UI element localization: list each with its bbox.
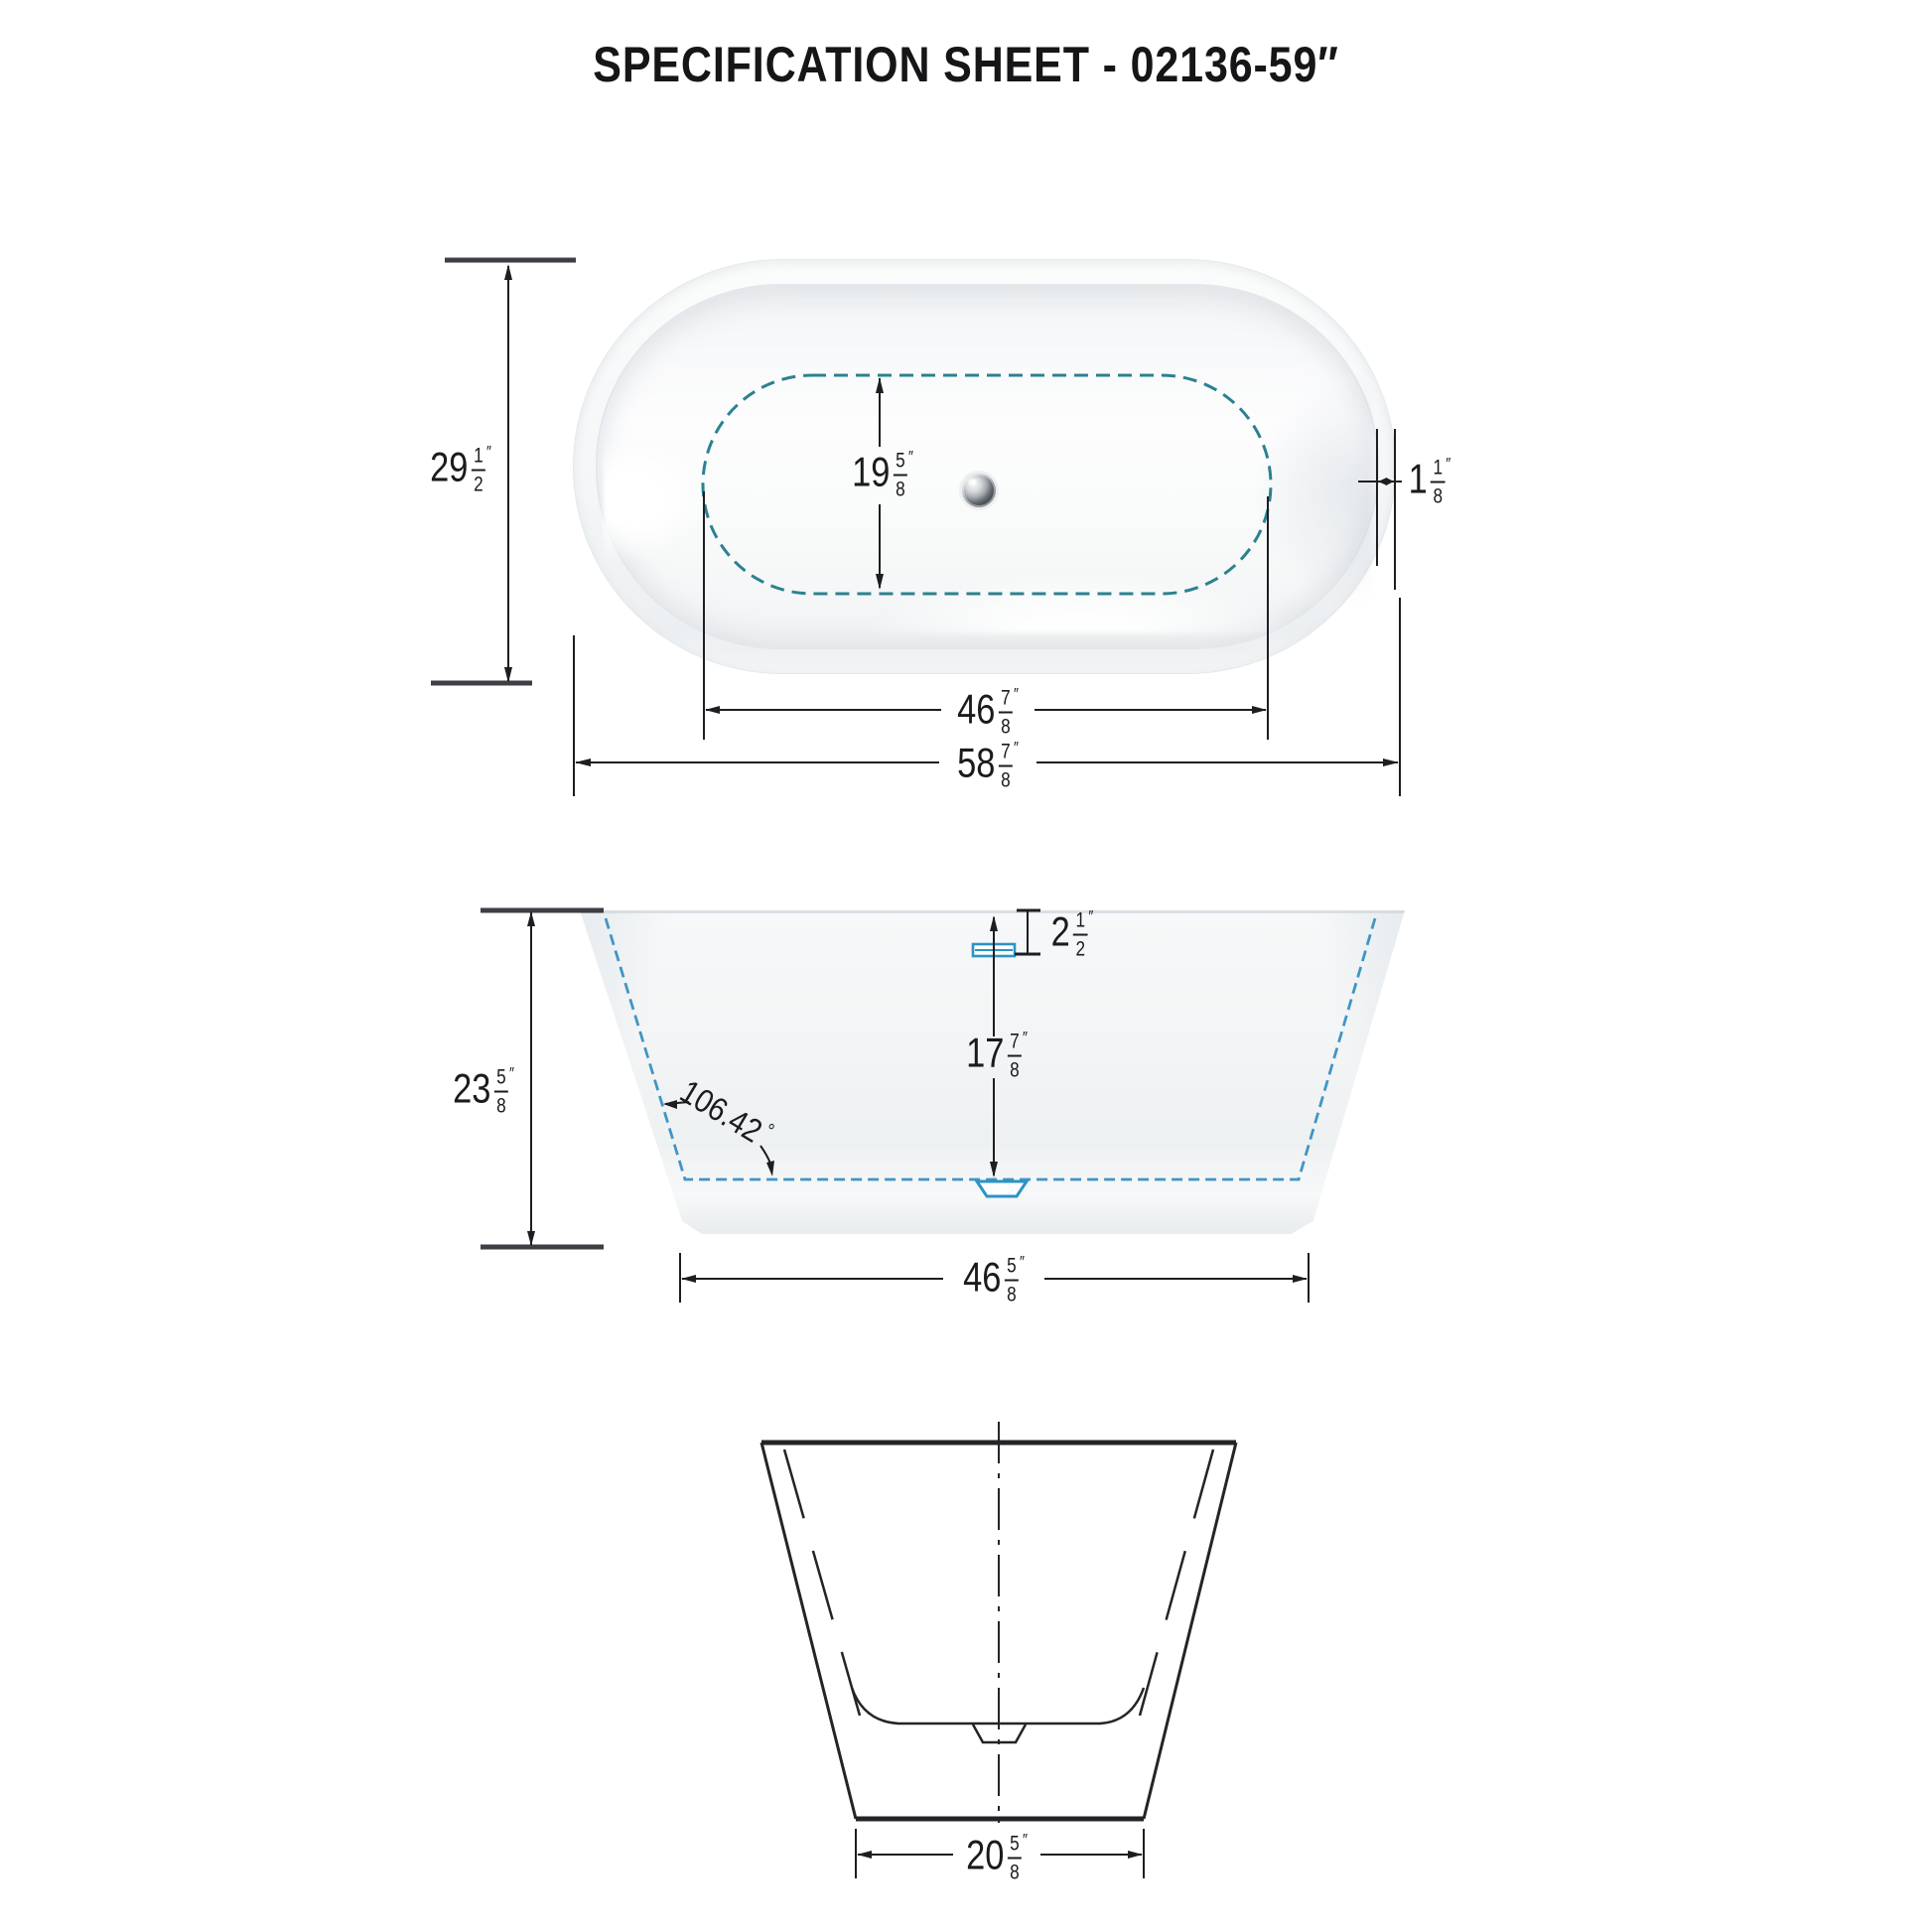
dim-basin-length: 46 7″8 — [957, 689, 1019, 738]
dim-interior-depth: 17 7″8 — [966, 1033, 1028, 1081]
reflection-highlight — [871, 574, 1288, 633]
dim-rim-thickness: 1 1″8 — [1409, 459, 1451, 507]
end-view-drain — [973, 1725, 1026, 1742]
dim-overall-height: 23 5″8 — [453, 1068, 514, 1117]
dim-overflow-to-rim: 2 1″2 — [1051, 911, 1094, 960]
dim-base-width: 20 5″8 — [966, 1835, 1028, 1883]
top-view-basin — [596, 284, 1379, 649]
dim-overall-width: 29 1″2 — [430, 447, 491, 495]
basin-shadow — [1252, 375, 1371, 604]
reflection-highlight — [604, 435, 713, 564]
top-view-tub — [574, 260, 1395, 673]
drain-icon — [962, 474, 996, 507]
dim-base-length: 46 5″8 — [963, 1257, 1025, 1306]
spec-sheet-page: SPECIFICATION SHEET - 02136-59″ — [0, 0, 1932, 1932]
page-title: SPECIFICATION SHEET - 02136-59″ — [593, 36, 1338, 93]
end-view-drawing — [761, 1422, 1236, 1878]
dim-basin-width: 19 5″8 — [852, 452, 913, 500]
dim-overall-length: 58 7″8 — [957, 743, 1019, 791]
